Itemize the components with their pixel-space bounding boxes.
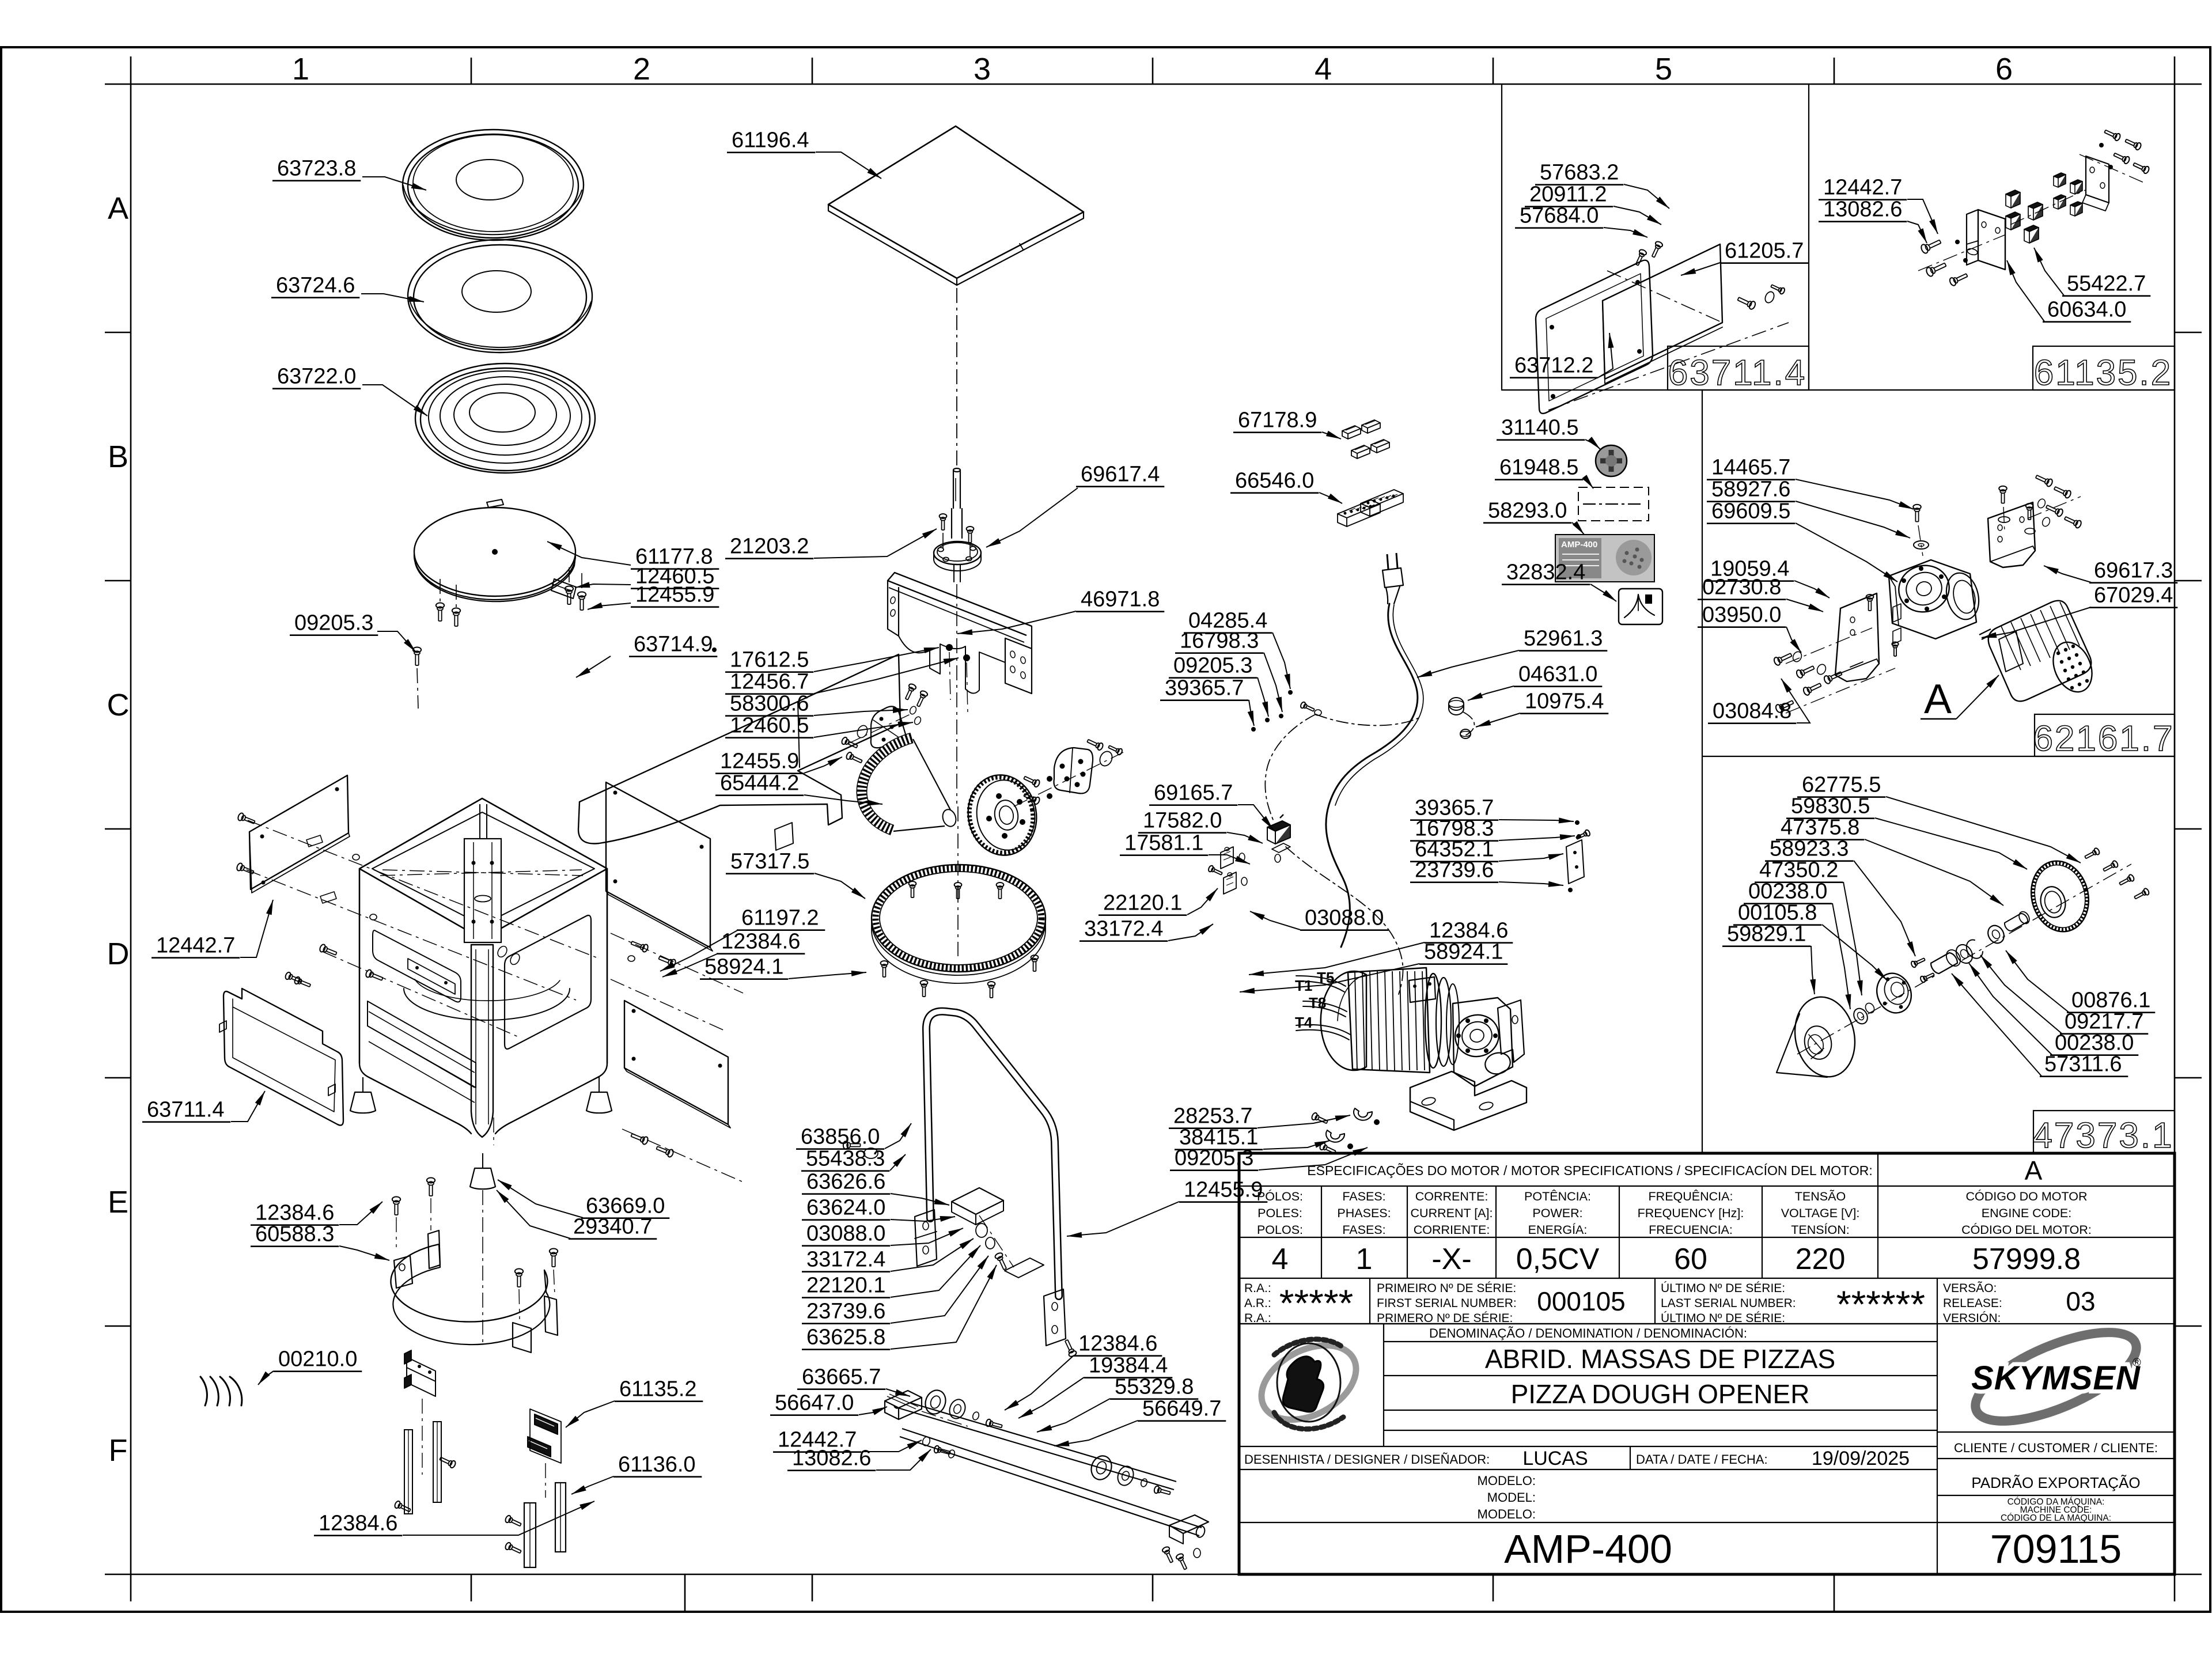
svg-text:MODELO:: MODELO: xyxy=(1478,1474,1536,1488)
svg-text:09205.3: 09205.3 xyxy=(1173,654,1252,678)
svg-text:SKYMSEN: SKYMSEN xyxy=(1971,1359,2141,1397)
svg-text:00105.8: 00105.8 xyxy=(1738,901,1817,925)
svg-text:CLIENTE / CUSTOMER / CLIENTE:: CLIENTE / CUSTOMER / CLIENTE: xyxy=(1954,1441,2158,1455)
svg-text:MODELO:: MODELO: xyxy=(1478,1507,1536,1521)
svg-text:63625.8: 63625.8 xyxy=(806,1325,885,1350)
svg-text:61205.7: 61205.7 xyxy=(1725,239,1804,263)
svg-text:MODEL:: MODEL: xyxy=(1487,1490,1536,1505)
svg-text:4: 4 xyxy=(1272,1243,1289,1276)
svg-text:RELEASE:: RELEASE: xyxy=(1943,1297,2002,1310)
svg-text:PRIMEIRO Nº DE SÉRIE:: PRIMEIRO Nº DE SÉRIE: xyxy=(1377,1282,1516,1295)
svg-text:23739.6: 23739.6 xyxy=(806,1300,885,1324)
svg-text:03084.8: 03084.8 xyxy=(1713,699,1791,724)
svg-text:12455.9: 12455.9 xyxy=(635,583,714,607)
svg-text:PADRÃO EXPORTAÇÃO: PADRÃO EXPORTAÇÃO xyxy=(1971,1474,2140,1491)
svg-text:FASES:: FASES: xyxy=(1342,1223,1385,1237)
svg-text:55422.7: 55422.7 xyxy=(2067,272,2146,296)
svg-text:CURRENT [A]:: CURRENT [A]: xyxy=(1411,1206,1493,1220)
svg-text:61948.5: 61948.5 xyxy=(1499,456,1578,480)
svg-text:00238.0: 00238.0 xyxy=(1748,880,1827,904)
svg-text:CORRIENTE:: CORRIENTE: xyxy=(1414,1223,1490,1237)
svg-text:17581.1: 17581.1 xyxy=(1124,831,1203,855)
svg-text:VOLTAGE [V]:: VOLTAGE [V]: xyxy=(1781,1206,1860,1220)
svg-text:55438.3: 55438.3 xyxy=(806,1147,885,1171)
svg-text:22120.1: 22120.1 xyxy=(1103,891,1182,915)
svg-text:58923.3: 58923.3 xyxy=(1770,837,1849,861)
svg-text:61135.2: 61135.2 xyxy=(2034,353,2173,393)
svg-text:63665.7: 63665.7 xyxy=(802,1365,881,1389)
svg-text:R.A.:: R.A.: xyxy=(1244,1282,1271,1295)
svg-text:ENGINE CODE:: ENGINE CODE: xyxy=(1982,1206,2072,1220)
svg-text:09205.3: 09205.3 xyxy=(1175,1146,1253,1171)
svg-text:17582.0: 17582.0 xyxy=(1143,809,1222,833)
svg-text:B: B xyxy=(108,440,128,474)
svg-text:57684.0: 57684.0 xyxy=(1520,204,1599,228)
svg-text:20911.2: 20911.2 xyxy=(1529,183,1607,207)
svg-text:22120.1: 22120.1 xyxy=(806,1274,885,1298)
svg-text:3: 3 xyxy=(974,52,991,86)
svg-text:56647.0: 56647.0 xyxy=(775,1391,854,1415)
svg-text:52961.3: 52961.3 xyxy=(1524,627,1603,651)
svg-text:E: E xyxy=(108,1185,128,1219)
svg-text:00210.0: 00210.0 xyxy=(278,1347,357,1372)
svg-text:AMP-400: AMP-400 xyxy=(1561,540,1597,550)
svg-text:03088.0: 03088.0 xyxy=(806,1222,885,1246)
svg-text:55329.8: 55329.8 xyxy=(1115,1375,1194,1399)
svg-text:02730.8: 02730.8 xyxy=(1702,575,1781,600)
svg-text:220: 220 xyxy=(1796,1243,1846,1276)
svg-text:FREQUÊNCIA:: FREQUÊNCIA: xyxy=(1649,1189,1733,1203)
svg-text:POWER:: POWER: xyxy=(1532,1206,1582,1220)
svg-text:DATA / DATE / FECHA:: DATA / DATE / FECHA: xyxy=(1636,1452,1768,1467)
svg-text:5: 5 xyxy=(1655,52,1672,86)
svg-text:12384.6: 12384.6 xyxy=(255,1201,334,1225)
svg-text:63711.4: 63711.4 xyxy=(147,1098,225,1122)
svg-text:58924.1: 58924.1 xyxy=(704,955,783,979)
svg-text:03: 03 xyxy=(2066,1286,2095,1316)
svg-text:62775.5: 62775.5 xyxy=(1802,773,1881,797)
svg-text:47373.1: 47373.1 xyxy=(2032,1116,2173,1156)
svg-text:17612.5: 17612.5 xyxy=(730,648,809,672)
svg-text:69617.4: 69617.4 xyxy=(1081,463,1160,487)
svg-text:33172.4: 33172.4 xyxy=(806,1248,885,1272)
svg-text:56649.7: 56649.7 xyxy=(1142,1397,1221,1421)
svg-text:59829.1: 59829.1 xyxy=(1727,922,1806,946)
svg-text:03088.0: 03088.0 xyxy=(1305,906,1384,930)
svg-text:10975.4: 10975.4 xyxy=(1525,690,1604,714)
svg-text:69165.7: 69165.7 xyxy=(1154,781,1233,805)
svg-text:ÚLTIMO Nº DE SÉRIE:: ÚLTIMO Nº DE SÉRIE: xyxy=(1661,1312,1785,1325)
svg-text:TENSÃO: TENSÃO xyxy=(1795,1189,1846,1203)
svg-text:63624.0: 63624.0 xyxy=(806,1196,885,1220)
svg-text:******: ****** xyxy=(1836,1283,1925,1325)
svg-text:FREQUENCY [Hz]:: FREQUENCY [Hz]: xyxy=(1638,1206,1744,1220)
svg-text:CÓDIGO DO MOTOR: CÓDIGO DO MOTOR xyxy=(1965,1189,2087,1203)
svg-text:04631.0: 04631.0 xyxy=(1518,662,1597,687)
svg-text:63626.6: 63626.6 xyxy=(806,1170,885,1194)
svg-text:63714.9: 63714.9 xyxy=(634,632,713,657)
svg-text:POLES:: POLES: xyxy=(1257,1206,1302,1220)
svg-text:13082.6: 13082.6 xyxy=(792,1446,871,1471)
svg-text:12460.5: 12460.5 xyxy=(730,714,809,738)
svg-text:A: A xyxy=(108,191,128,226)
svg-text:A: A xyxy=(2025,1156,2043,1185)
svg-text:F: F xyxy=(109,1433,128,1468)
svg-text:09217.7: 09217.7 xyxy=(2065,1010,2143,1034)
svg-text:62161.7: 62161.7 xyxy=(2033,719,2174,759)
svg-text:C: C xyxy=(107,688,130,722)
svg-text:60: 60 xyxy=(1674,1243,1707,1276)
svg-text:09205.3: 09205.3 xyxy=(294,611,373,635)
svg-text:ABRID. MASSAS DE PIZZAS: ABRID. MASSAS DE PIZZAS xyxy=(1485,1344,1835,1374)
svg-text:28253.7: 28253.7 xyxy=(1173,1104,1252,1128)
svg-text:19/09/2025: 19/09/2025 xyxy=(1812,1448,1910,1469)
svg-text:-X-: -X- xyxy=(1431,1243,1471,1276)
svg-text:LAST SERIAL NUMBER:: LAST SERIAL NUMBER: xyxy=(1661,1297,1796,1310)
svg-text:CÓDIGO DEL MOTOR:: CÓDIGO DEL MOTOR: xyxy=(1961,1222,2092,1237)
svg-text:000105: 000105 xyxy=(1537,1286,1626,1316)
svg-text:PÓLOS:: PÓLOS: xyxy=(1257,1189,1303,1203)
svg-text:1: 1 xyxy=(1356,1243,1373,1276)
svg-text:58924.1: 58924.1 xyxy=(1424,940,1503,964)
svg-text:POTÊNCIA:: POTÊNCIA: xyxy=(1524,1189,1591,1203)
svg-text:A.R.:: A.R.: xyxy=(1244,1297,1271,1310)
svg-text:60634.0: 60634.0 xyxy=(2047,298,2126,322)
svg-text:23739.6: 23739.6 xyxy=(1415,858,1494,882)
svg-text:2: 2 xyxy=(633,52,650,86)
svg-text:00238.0: 00238.0 xyxy=(2055,1031,2134,1055)
svg-text:ESPECIFICAÇÕES DO MOTOR / MOTO: ESPECIFICAÇÕES DO MOTOR / MOTOR SPECIFIC… xyxy=(1307,1162,1872,1178)
svg-text:PRIMERO Nº DE SÉRIE:: PRIMERO Nº DE SÉRIE: xyxy=(1377,1312,1513,1325)
svg-text:46971.8: 46971.8 xyxy=(1081,588,1160,612)
svg-text:57311.6: 57311.6 xyxy=(2044,1052,2122,1077)
svg-text:LUCAS: LUCAS xyxy=(1522,1448,1588,1469)
svg-text:6: 6 xyxy=(1995,52,2013,86)
svg-text:ENERGÍA:: ENERGÍA: xyxy=(1528,1222,1588,1237)
svg-text:12384.6: 12384.6 xyxy=(319,1512,397,1536)
svg-text:31140.5: 31140.5 xyxy=(1501,416,1579,440)
svg-text:32832.4: 32832.4 xyxy=(1506,560,1585,585)
svg-text:4: 4 xyxy=(1315,52,1332,86)
svg-text:CORRENTE:: CORRENTE: xyxy=(1415,1190,1488,1203)
svg-text:PHASES:: PHASES: xyxy=(1337,1206,1391,1220)
svg-text:DENOMINAÇÃO / DENOMINATION / D: DENOMINAÇÃO / DENOMINATION / DENOMINACIÓ… xyxy=(1429,1326,1747,1340)
svg-text:1: 1 xyxy=(292,52,309,86)
svg-text:POLOS:: POLOS: xyxy=(1257,1223,1303,1237)
svg-text:VERSIÓN:: VERSIÓN: xyxy=(1943,1312,2001,1325)
svg-text:13082.6: 13082.6 xyxy=(1823,198,1902,222)
svg-text:D: D xyxy=(107,937,130,971)
svg-text:57999.8: 57999.8 xyxy=(1972,1243,2081,1276)
svg-text:03950.0: 03950.0 xyxy=(1702,603,1781,627)
svg-text:12384.6: 12384.6 xyxy=(1078,1332,1157,1356)
svg-text:0,5CV: 0,5CV xyxy=(1516,1243,1600,1276)
svg-text:AMP-400: AMP-400 xyxy=(1504,1527,1672,1571)
svg-text:69617.3: 69617.3 xyxy=(2094,559,2173,583)
svg-text:VERSÃO:: VERSÃO: xyxy=(1943,1281,1997,1295)
svg-text:39365.7: 39365.7 xyxy=(1165,676,1244,700)
svg-text:61135.2: 61135.2 xyxy=(619,1377,697,1402)
svg-text:63724.6: 63724.6 xyxy=(276,274,355,298)
svg-text:TENSÍON:: TENSÍON: xyxy=(1791,1222,1850,1237)
svg-text:CÓDIGO DE LA MAQUINA:: CÓDIGO DE LA MAQUINA: xyxy=(2001,1513,2111,1523)
svg-text:61196.4: 61196.4 xyxy=(732,128,809,153)
svg-text:FIRST SERIAL NUMBER:: FIRST SERIAL NUMBER: xyxy=(1377,1297,1517,1310)
svg-text:12442.7: 12442.7 xyxy=(1823,176,1902,200)
svg-text:®: ® xyxy=(2133,1357,2141,1369)
svg-text:ÚLTIMO Nº DE SÉRIE:: ÚLTIMO Nº DE SÉRIE: xyxy=(1661,1282,1785,1295)
svg-text:19384.4: 19384.4 xyxy=(1089,1354,1168,1378)
svg-text:67029.4: 67029.4 xyxy=(2094,584,2173,608)
svg-text:PIZZA DOUGH OPENER: PIZZA DOUGH OPENER xyxy=(1511,1379,1810,1409)
svg-text:57317.5: 57317.5 xyxy=(730,850,809,874)
svg-text:FRECUENCIA:: FRECUENCIA: xyxy=(1649,1223,1733,1237)
svg-text:FASES:: FASES: xyxy=(1342,1190,1385,1203)
svg-text:57683.2: 57683.2 xyxy=(1540,161,1619,185)
svg-text:12455.9: 12455.9 xyxy=(720,749,799,774)
svg-text:61136.0: 61136.0 xyxy=(618,1453,696,1477)
svg-text:47350.2: 47350.2 xyxy=(1759,858,1838,882)
svg-text:65444.2: 65444.2 xyxy=(720,771,799,796)
svg-text:T1: T1 xyxy=(1295,977,1312,994)
svg-text:21203.2: 21203.2 xyxy=(730,535,809,559)
svg-text:67178.9: 67178.9 xyxy=(1238,408,1317,433)
svg-text:61197.2: 61197.2 xyxy=(741,906,819,930)
svg-text:12384.6: 12384.6 xyxy=(1429,919,1508,943)
svg-text:63856.0: 63856.0 xyxy=(801,1125,880,1149)
svg-text:A: A xyxy=(1924,676,1952,722)
svg-text:58293.0: 58293.0 xyxy=(1488,499,1567,523)
svg-text:709115: 709115 xyxy=(1990,1527,2122,1571)
svg-text:66546.0: 66546.0 xyxy=(1235,469,1314,493)
svg-text:63712.2: 63712.2 xyxy=(1514,354,1593,378)
svg-text:60588.3: 60588.3 xyxy=(255,1222,334,1247)
svg-text:14465.7: 14465.7 xyxy=(1711,456,1790,480)
svg-text:*****: ***** xyxy=(1279,1282,1353,1324)
svg-text:12384.6: 12384.6 xyxy=(721,930,800,954)
svg-text:DESENHISTA / DESIGNER / DISEÑA: DESENHISTA / DESIGNER / DISEÑADOR: xyxy=(1244,1452,1490,1467)
svg-text:47375.8: 47375.8 xyxy=(1781,816,1859,840)
svg-text:16798.3: 16798.3 xyxy=(1180,629,1259,653)
svg-text:12456.7: 12456.7 xyxy=(730,670,809,694)
svg-text:33172.4: 33172.4 xyxy=(1084,917,1163,941)
svg-text:T4: T4 xyxy=(1295,1014,1313,1031)
svg-text:58927.6: 58927.6 xyxy=(1711,478,1790,502)
svg-text:69609.5: 69609.5 xyxy=(1711,499,1790,524)
svg-text:29340.7: 29340.7 xyxy=(573,1215,652,1239)
svg-text:63723.8: 63723.8 xyxy=(277,157,356,181)
svg-text:R.A.:: R.A.: xyxy=(1244,1312,1271,1325)
svg-text:63722.0: 63722.0 xyxy=(277,365,356,389)
svg-text:58300.6: 58300.6 xyxy=(730,692,809,716)
svg-text:12442.7: 12442.7 xyxy=(156,934,235,958)
svg-text:59830.5: 59830.5 xyxy=(1791,794,1870,819)
svg-text:00876.1: 00876.1 xyxy=(2071,988,2150,1013)
svg-text:12455.9: 12455.9 xyxy=(1184,1178,1263,1202)
